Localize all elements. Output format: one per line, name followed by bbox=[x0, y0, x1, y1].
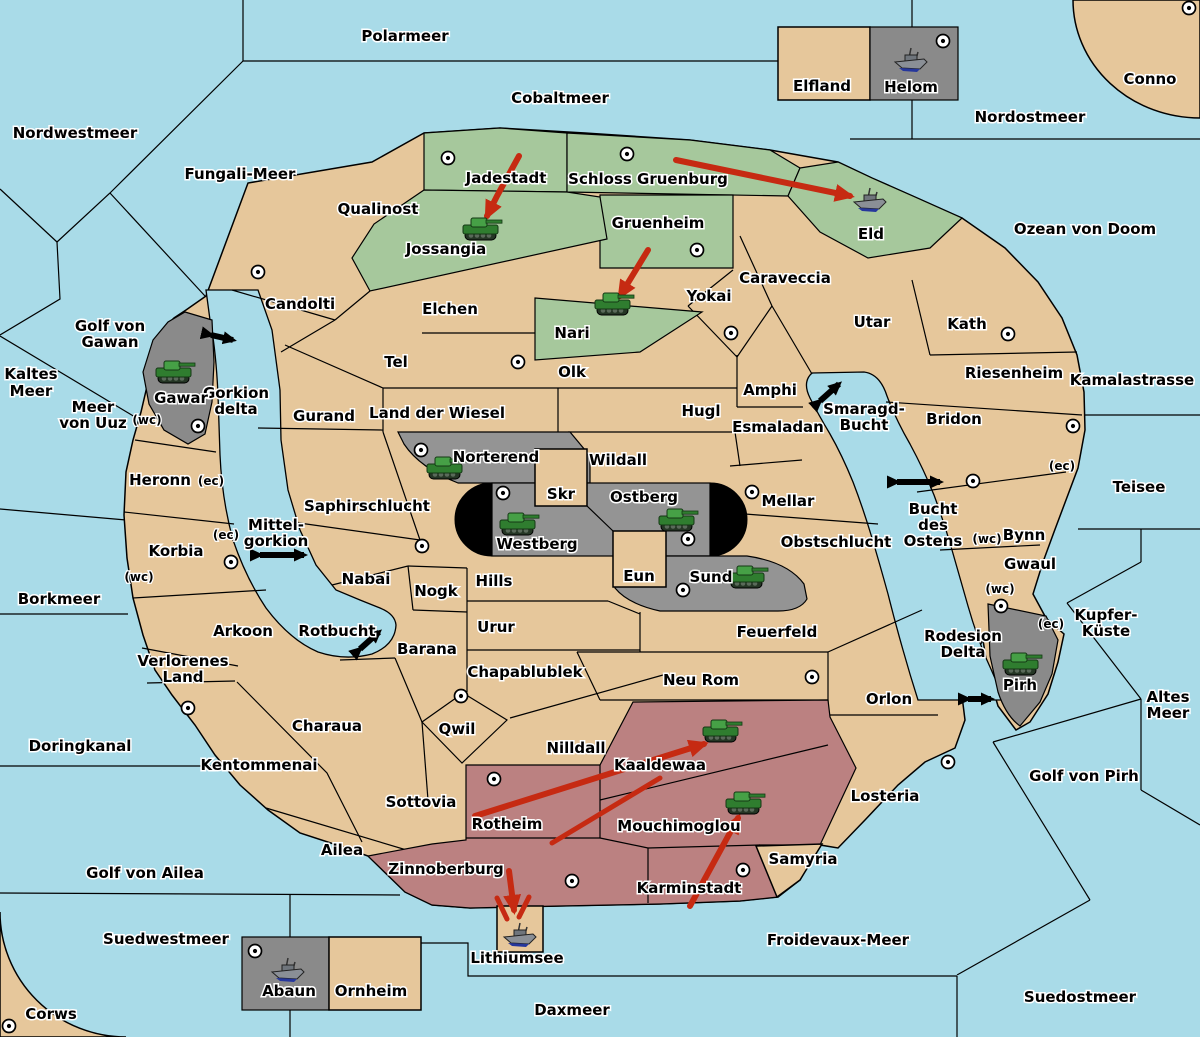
label-tel: Tel bbox=[384, 353, 408, 371]
label-kaltes-meer-2: Meer bbox=[10, 382, 53, 400]
label-schloss-gruenburg: Schloss Gruenburg bbox=[568, 170, 728, 188]
label-urur: Urur bbox=[477, 618, 515, 636]
label-ailea: Ailea bbox=[321, 841, 363, 859]
label-skr: Skr bbox=[547, 485, 576, 503]
label-fungali-meer: Fungali-Meer bbox=[185, 165, 296, 183]
game-map: Polarmeer Cobaltmeer Nordostmeer Conno N… bbox=[0, 0, 1200, 1037]
label-mellar: Mellar bbox=[762, 492, 816, 510]
label-nogk: Nogk bbox=[414, 582, 459, 600]
label-elchen: Elchen bbox=[422, 300, 478, 318]
label-conno: Conno bbox=[1124, 70, 1177, 88]
label-caraveccia: Caraveccia bbox=[739, 269, 831, 287]
label-riesenheim: Riesenheim bbox=[965, 364, 1063, 382]
label-yokai: Yokai bbox=[685, 287, 731, 305]
label-wildall: Wildall bbox=[589, 451, 647, 469]
label-nordostmeer: Nordostmeer bbox=[975, 108, 1086, 126]
label-kaaldewaa: Kaaldewaa bbox=[614, 756, 706, 774]
label-norterend: Norterend bbox=[453, 448, 540, 466]
label-neu-rom: Neu Rom bbox=[663, 671, 739, 689]
label-utar: Utar bbox=[854, 313, 891, 331]
label-borkmeer: Borkmeer bbox=[18, 590, 101, 608]
label-verlorenes-land-2: Land bbox=[162, 668, 203, 686]
label-sottovia: Sottovia bbox=[386, 793, 457, 811]
label-jossangia: Jossangia bbox=[405, 240, 487, 258]
tag-wc-gawar: (wc) bbox=[132, 413, 161, 427]
label-ozean-von-doom: Ozean von Doom bbox=[1014, 220, 1156, 238]
label-golf-von-pirh: Golf von Pirh bbox=[1029, 767, 1139, 785]
tag-wc-bynn: (wc) bbox=[972, 532, 1001, 546]
label-kamalastrasse: Kamalastrasse bbox=[1070, 371, 1194, 389]
label-chapablublek: Chapablublek bbox=[467, 663, 583, 681]
tag-ec-heronn: (ec) bbox=[198, 474, 224, 488]
label-gwaul: Gwaul bbox=[1004, 555, 1056, 573]
label-sund: Sund bbox=[690, 568, 733, 586]
label-bridon: Bridon bbox=[926, 410, 982, 428]
label-kath: Kath bbox=[947, 315, 987, 333]
label-kaltes-meer-1: Kaltes bbox=[4, 365, 57, 383]
label-barana: Barana bbox=[397, 640, 457, 658]
label-golf-von-ailea: Golf von Ailea bbox=[86, 864, 204, 882]
label-doringkanal: Doringkanal bbox=[29, 737, 132, 755]
label-esmaladan: Esmaladan bbox=[732, 418, 824, 436]
label-westberg: Westberg bbox=[496, 535, 577, 553]
label-lithiumsee: Lithiumsee bbox=[470, 949, 563, 967]
label-land-der-wiesel: Land der Wiesel bbox=[369, 404, 505, 422]
label-amphi: Amphi bbox=[743, 381, 797, 399]
label-golf-von-gawan-2: Gawan bbox=[81, 333, 138, 351]
label-elfland: Elfland bbox=[793, 77, 851, 95]
label-bynn: Bynn bbox=[1003, 526, 1046, 544]
label-smaragd-bucht-2: Bucht bbox=[840, 416, 889, 434]
label-ornheim: Ornheim bbox=[335, 982, 407, 1000]
label-jadestadt: Jadestadt bbox=[465, 169, 547, 187]
label-altes-meer-2: Meer bbox=[1147, 704, 1190, 722]
label-suedostmeer: Suedostmeer bbox=[1024, 988, 1137, 1006]
label-korbia: Korbia bbox=[148, 542, 203, 560]
label-mittel-gorkion-2: gorkion bbox=[244, 532, 309, 550]
label-heronn: Heronn bbox=[129, 471, 191, 489]
label-saphirschlucht: Saphirschlucht bbox=[304, 497, 430, 515]
tag-wc-korbia: (wc) bbox=[124, 570, 153, 584]
label-losteria: Losteria bbox=[851, 787, 920, 805]
label-nari: Nari bbox=[554, 324, 589, 342]
label-kentommenai: Kentommenai bbox=[200, 756, 317, 774]
label-eun: Eun bbox=[623, 567, 655, 585]
label-karminstadt: Karminstadt bbox=[637, 879, 742, 897]
label-polarmeer: Polarmeer bbox=[361, 27, 449, 45]
label-helom: Helom bbox=[884, 78, 938, 96]
label-kupfer-kueste-2: Küste bbox=[1082, 622, 1130, 640]
label-ostberg: Ostberg bbox=[610, 488, 678, 506]
label-charaua: Charaua bbox=[292, 717, 362, 735]
label-daxmeer: Daxmeer bbox=[534, 1001, 610, 1019]
label-zinnoberburg: Zinnoberburg bbox=[388, 860, 504, 878]
tag-ec-korbia: (ec) bbox=[213, 528, 239, 542]
label-gurand: Gurand bbox=[293, 407, 355, 425]
label-rotheim: Rotheim bbox=[472, 815, 543, 833]
label-rotbucht: Rotbucht bbox=[298, 622, 375, 640]
label-rodesion-delta-2: Delta bbox=[940, 643, 985, 661]
label-teisee: Teisee bbox=[1113, 478, 1166, 496]
label-suedwestmeer: Suedwestmeer bbox=[103, 930, 229, 948]
label-nabai: Nabai bbox=[342, 570, 391, 588]
label-froidevaux-meer: Froidevaux-Meer bbox=[767, 931, 910, 949]
label-gruenheim: Gruenheim bbox=[612, 214, 705, 232]
tag-ec-bridon: (ec) bbox=[1049, 459, 1075, 473]
label-meer-von-uuz-2: von Uuz bbox=[59, 414, 127, 432]
label-candolti: Candolti bbox=[265, 295, 335, 313]
label-qualinost: Qualinost bbox=[338, 200, 419, 218]
label-samyria: Samyria bbox=[769, 850, 838, 868]
label-arkoon: Arkoon bbox=[213, 622, 273, 640]
label-olk: Olk bbox=[558, 363, 587, 381]
label-nordwestmeer: Nordwestmeer bbox=[13, 124, 138, 142]
label-corws: Corws bbox=[25, 1005, 77, 1023]
label-eld: Eld bbox=[858, 225, 884, 243]
label-hills: Hills bbox=[476, 572, 513, 590]
tag-ec-pirh: (ec) bbox=[1038, 617, 1064, 631]
label-qwil: Qwil bbox=[439, 720, 476, 738]
label-abaun: Abaun bbox=[262, 982, 316, 1000]
label-pirh: Pirh bbox=[1003, 676, 1037, 694]
label-gawar: Gawar bbox=[154, 389, 208, 407]
label-gorkion-delta-2: delta bbox=[214, 400, 257, 418]
label-bucht-des-ostens-3: Ostens bbox=[904, 532, 963, 550]
label-obstschlucht: Obstschlucht bbox=[781, 533, 892, 551]
label-orlon: Orlon bbox=[866, 690, 912, 708]
label-nilldall: Nilldall bbox=[546, 739, 605, 757]
label-feuerfeld: Feuerfeld bbox=[737, 623, 818, 641]
tag-wc-gwaul: (wc) bbox=[985, 582, 1014, 596]
label-cobaltmeer: Cobaltmeer bbox=[511, 89, 609, 107]
label-mouchimoglou: Mouchimoglou bbox=[617, 817, 740, 835]
label-hugl: Hugl bbox=[681, 402, 720, 420]
